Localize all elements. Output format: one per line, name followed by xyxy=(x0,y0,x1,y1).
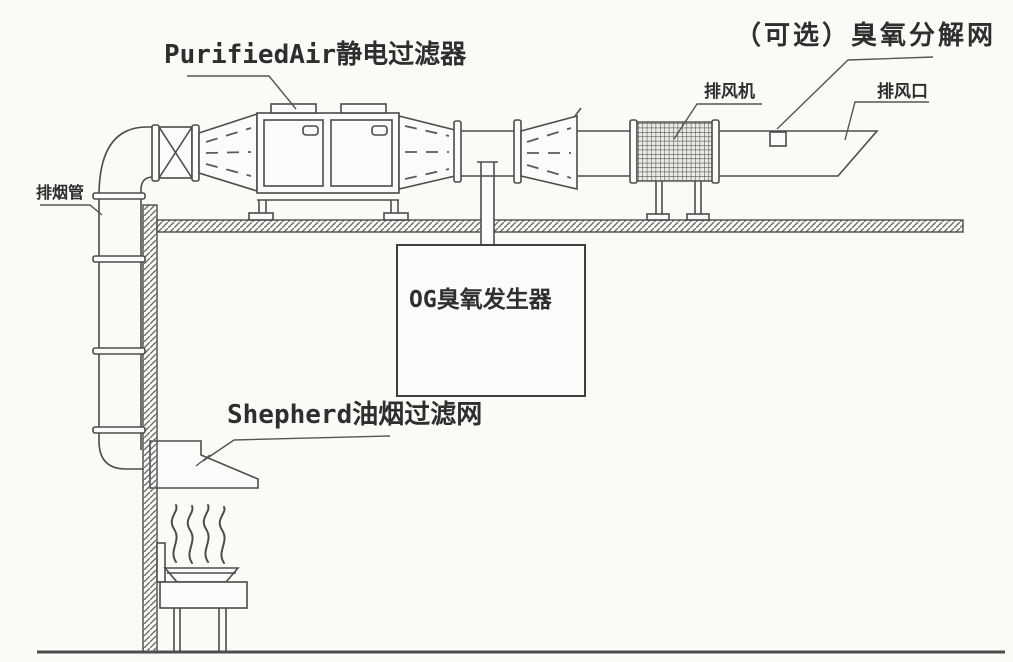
duct-flange xyxy=(93,427,145,433)
diagram-canvas: PurifiedAir静电过滤器 （可选）臭氧分解网 排风机 排风口 排烟管 O… xyxy=(0,0,1013,662)
leader-exhaust-outlet xyxy=(845,102,929,140)
fan-inlet-duct xyxy=(577,131,631,176)
stove-legs xyxy=(174,608,226,651)
duct-flange xyxy=(454,121,461,182)
discharge-duct xyxy=(719,131,877,176)
fan-mesh xyxy=(637,122,713,181)
exhaust-system-diagram: PurifiedAir静电过滤器 （可选）臭氧分解网 排风机 排风口 排烟管 O… xyxy=(0,0,1013,662)
label-electrostatic-filter: PurifiedAir静电过滤器 xyxy=(164,39,467,70)
steam-lines xyxy=(172,505,225,563)
flex-connector xyxy=(152,125,199,181)
label-smoke-duct: 排烟管 xyxy=(36,183,84,202)
leader-grease-filter xyxy=(196,436,390,466)
kitchen-hood xyxy=(150,441,258,488)
ozone-net-marker xyxy=(770,132,786,146)
duct-flange xyxy=(712,120,719,183)
inlet-diffuser-cone xyxy=(199,114,257,191)
exhaust-fan-unit xyxy=(630,120,719,220)
label-grease-filter: Shepherd油烟过滤网 xyxy=(227,400,482,430)
label-exhaust-outlet: 排风口 xyxy=(877,81,928,102)
duct-flange xyxy=(514,120,521,183)
filter-unit xyxy=(249,104,408,220)
wok xyxy=(165,568,238,582)
leader-smoke-duct xyxy=(40,205,102,215)
label-exhaust-fan: 排风机 xyxy=(704,81,755,102)
outlet-reducer-cone xyxy=(399,116,455,189)
filter-handle xyxy=(372,126,387,135)
fan-stand xyxy=(647,181,709,220)
label-optional-ozone-net: （可选）臭氧分解网 xyxy=(735,21,996,51)
label-ozone-generator: OG臭氧发生器 xyxy=(409,286,553,313)
duct-flange xyxy=(93,256,145,262)
cooking-stove xyxy=(157,543,247,651)
stove-body xyxy=(160,582,247,608)
expansion-cone xyxy=(521,108,581,189)
roof-slab xyxy=(157,220,963,232)
stove-back-panel xyxy=(157,543,165,582)
filter-top-tab xyxy=(341,104,386,113)
duct-flange xyxy=(93,193,145,199)
ozone-generator-box xyxy=(397,245,585,396)
duct-flange xyxy=(630,120,637,183)
filter-handle xyxy=(303,126,318,135)
duct-flange xyxy=(93,348,145,354)
filter-stand xyxy=(249,200,408,220)
